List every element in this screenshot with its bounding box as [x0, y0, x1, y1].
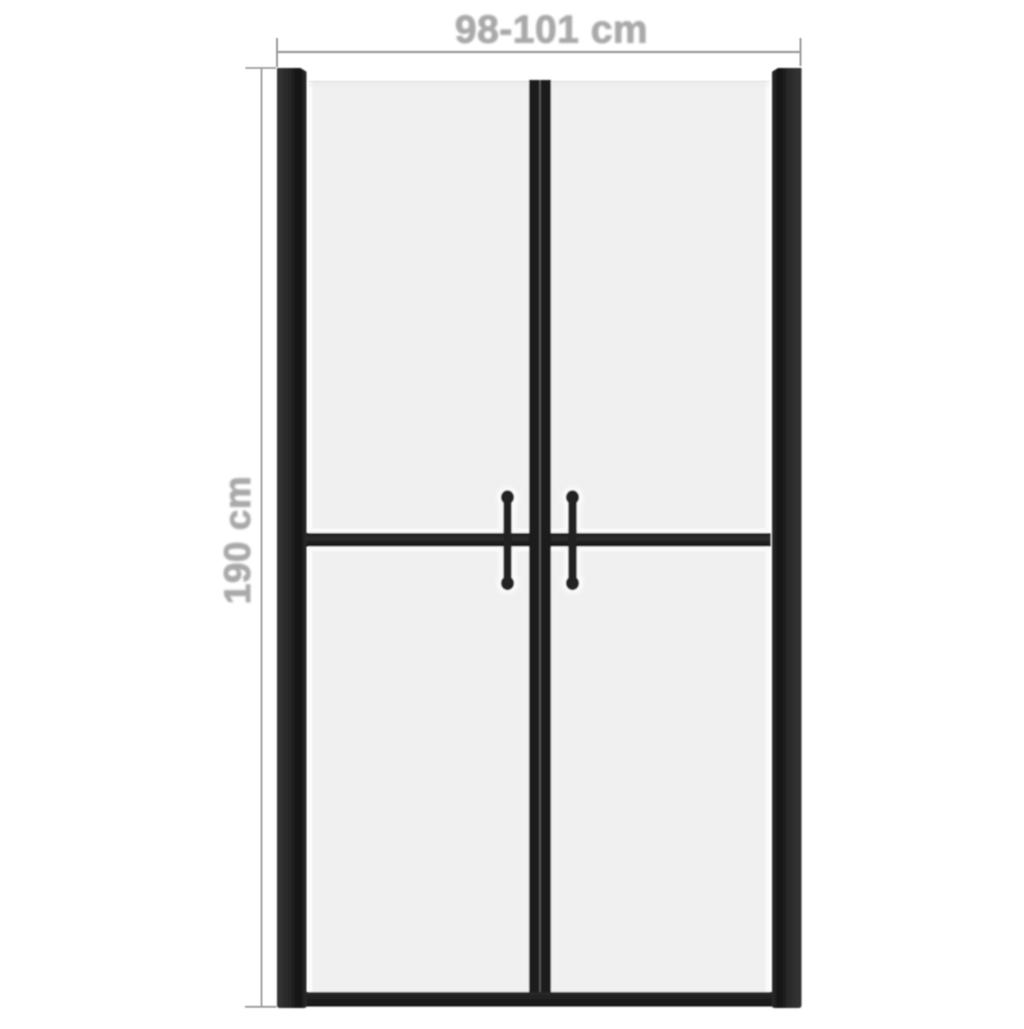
- svg-text:190 cm: 190 cm: [217, 476, 258, 605]
- svg-text:98-101 cm: 98-101 cm: [455, 9, 648, 52]
